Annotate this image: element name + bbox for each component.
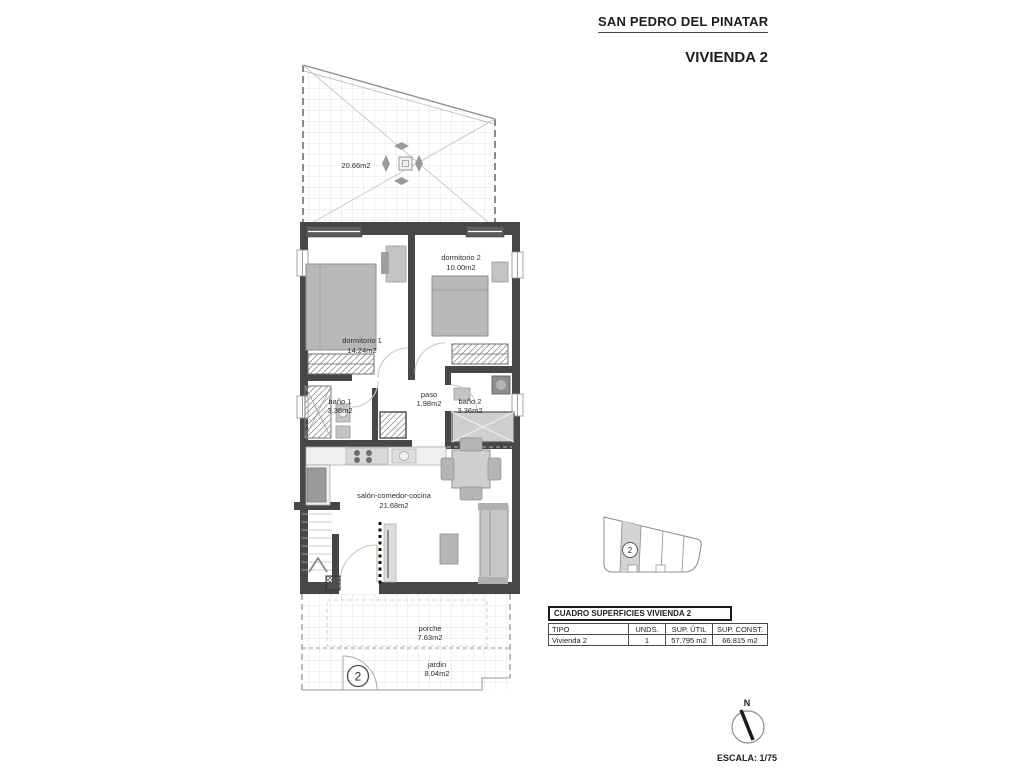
cell-unds: 1	[629, 635, 666, 646]
garden-tile-grid	[302, 594, 510, 690]
room-area-solarium: 20.66m2	[341, 161, 370, 170]
door-arc-dorm1	[378, 348, 408, 378]
sofa-armrest-bottom	[478, 577, 508, 584]
unit-number: 2	[355, 670, 362, 684]
room-label-dormitorio-2: dormitorio 2	[441, 253, 481, 262]
wall-center	[408, 235, 415, 380]
dining-chair-bottom	[460, 487, 482, 500]
stove-burner-3	[354, 457, 360, 463]
room-label-bano-2: baño 2	[459, 397, 482, 406]
compass-needle	[741, 710, 753, 740]
media-shelf	[384, 524, 396, 582]
sofa-armrest-top	[478, 503, 508, 510]
scale-label: ESCALA: 1/75	[717, 753, 777, 763]
dining-chair-top	[460, 438, 482, 451]
surfaces-table-header-row: TIPO UNDS. SUP. ÚTIL SUP. CONST.	[549, 624, 768, 635]
surfaces-table-block: CUADRO SUPERFICIES VIVIENDA 2 TIPO UNDS.…	[548, 606, 768, 646]
site-entrance-notch-1	[628, 565, 637, 572]
sofa	[480, 506, 508, 578]
room-bano-2: baño 2 3.36m2	[451, 376, 514, 442]
bed-dorm2	[432, 276, 488, 336]
stove-burner-2	[366, 450, 372, 456]
solarium-terrace: 20.66m2	[303, 65, 495, 228]
site-block-outline	[604, 517, 701, 572]
col-tipo: TIPO	[549, 624, 629, 635]
room-area-bano-1: 3.36m2	[327, 406, 352, 415]
room-dormitorio-1: dormitorio 1 14.24m2	[306, 246, 408, 378]
cell-tipo: Vivienda 2	[549, 635, 629, 646]
floor-plan-page: SAN PEDRO DEL PINATAR VIVIENDA 2	[0, 0, 1024, 768]
room-area-paso: 1.98m2	[416, 399, 441, 408]
room-area-dormitorio-1: 14.24m2	[347, 346, 376, 355]
wall-bano1-bottom	[300, 440, 412, 447]
door-arc-dorm2	[415, 343, 445, 373]
room-area-jardin: 8.04m2	[424, 669, 449, 678]
fridge	[307, 468, 326, 502]
dining-table	[452, 450, 490, 488]
kitchen-sink-basin	[400, 452, 409, 461]
chair-dorm1	[381, 252, 389, 274]
washing-machine-door	[496, 380, 506, 390]
door-gap-porch	[339, 582, 379, 594]
room-dormitorio-2: dormitorio 2 10.00m2	[415, 253, 508, 373]
stove-burner-1	[354, 450, 360, 456]
room-area-dormitorio-2: 10.00m2	[446, 263, 475, 272]
room-area-porche: 7.63m2	[417, 633, 442, 642]
door-arc-porch	[340, 545, 377, 582]
col-sup-util: SUP. ÚTIL	[666, 624, 713, 635]
room-label-porche: porche	[419, 624, 442, 633]
cell-sup-util: 57.795 m2	[666, 635, 713, 646]
table-row: Vivienda 2 1 57.795 m2 66.815 m2	[549, 635, 768, 646]
col-sup-const: SUP. CONST.	[713, 624, 768, 635]
compass: N	[732, 698, 764, 743]
north-label: N	[744, 698, 751, 708]
dining-chair-right	[488, 458, 501, 480]
room-label-dormitorio-1: dormitorio 1	[342, 336, 382, 345]
room-bano-1: baño 1 3.36m2	[305, 381, 378, 438]
toilet-bano1	[336, 426, 350, 438]
wall-stairs-right	[332, 534, 339, 582]
drain-symbol	[399, 157, 412, 170]
surfaces-table-title: CUADRO SUPERFICIES VIVIENDA 2	[548, 606, 732, 621]
wall-dorm2-bottom	[445, 366, 520, 373]
room-label-paso: paso	[421, 390, 437, 399]
dining-chair-left	[441, 458, 454, 480]
stove-burner-4	[366, 457, 372, 463]
structural-column	[326, 576, 340, 590]
door-gap-bano2	[445, 385, 451, 411]
wall-dorm1-bottom	[300, 374, 352, 381]
room-label-salon: salón-comedor-cocina	[357, 491, 432, 500]
room-area-salon: 21.68m2	[379, 501, 408, 510]
room-salon: salón-comedor-cocina 21.68m2	[340, 491, 508, 584]
floor-plan-drawing: 20.66m2	[0, 0, 1024, 768]
site-unit-number: 2	[628, 546, 633, 555]
washer-niche	[380, 412, 406, 438]
site-location-sketch: 2	[604, 517, 701, 572]
cell-sup-const: 66.815 m2	[713, 635, 768, 646]
wall-bano2-bottom	[445, 442, 520, 449]
coffee-table	[440, 534, 458, 564]
room-label-jardin: jardin	[427, 660, 446, 669]
room-label-bano-1: baño 1	[329, 397, 352, 406]
site-entrance-notch-2	[656, 565, 665, 572]
surfaces-table: TIPO UNDS. SUP. ÚTIL SUP. CONST. Viviend…	[548, 623, 768, 646]
porch-garden: 2 porche 7.63m2 jardin 8.04m2	[302, 594, 510, 690]
room-area-bano-2: 3.36m2	[457, 406, 482, 415]
nightstand-dorm2	[492, 262, 508, 282]
col-unds: UNDS.	[629, 624, 666, 635]
